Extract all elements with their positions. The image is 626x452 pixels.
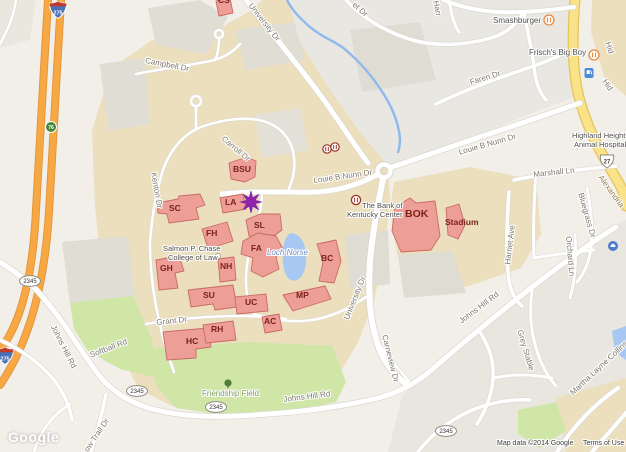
- restaurant-icon-smashburger[interactable]: [544, 15, 554, 25]
- building-label-rh: RH: [211, 325, 223, 334]
- building-label-la: LA: [225, 198, 236, 207]
- shield-text: 2345: [439, 429, 453, 435]
- shield-text: 2345: [130, 389, 144, 395]
- map-canvas[interactable]: 275 275 76 27 2345 2345 2345 234: [0, 0, 626, 452]
- building-label-sc: SC: [169, 204, 181, 213]
- place-label-chase-law-line1[interactable]: Salmon P. Chase: [163, 245, 220, 253]
- shield-text: 275: [0, 357, 9, 363]
- place-label-animal-hospital-line1[interactable]: Highland Heights: [572, 132, 626, 140]
- place-label-animal-hospital-line2[interactable]: Animal Hospital: [574, 141, 626, 149]
- building-label-cs: CS: [218, 0, 230, 5]
- shield-text: 275: [53, 11, 62, 17]
- map-artwork: 275 275 76 27 2345 2345 2345 234: [0, 0, 626, 452]
- event-marker-star[interactable]: [240, 191, 262, 213]
- ky-2345-shield-4: 2345: [436, 426, 457, 437]
- shield-text: 76: [48, 125, 54, 131]
- google-logo[interactable]: Google: [8, 430, 59, 444]
- building-label-su: SU: [203, 291, 215, 300]
- shield-text: 2345: [209, 405, 223, 411]
- place-label-friendship-field[interactable]: Friendship Field: [202, 390, 259, 398]
- place-label-frischs-big-boy[interactable]: Frisch's Big Boy: [529, 49, 586, 57]
- place-label-bank-of-kentucky-line1[interactable]: The Bank of: [362, 202, 402, 210]
- building-label-mp: MP: [296, 291, 309, 300]
- building-label-uc: UC: [245, 298, 257, 307]
- building-label-ac: AC: [264, 317, 276, 326]
- ky-2345-shield-2: 2345: [127, 386, 148, 397]
- place-label-smashburger[interactable]: Smashburger: [493, 17, 541, 25]
- place-label-bank-of-kentucky-line2[interactable]: Kentucky Center: [347, 211, 402, 219]
- lodging-icon[interactable]: [608, 241, 618, 251]
- building-label-nh: NH: [220, 262, 232, 271]
- venue-icon-bank-of-kentucky-center[interactable]: [351, 195, 360, 204]
- building-label-gh: GH: [160, 264, 173, 273]
- place-label-chase-law-line2[interactable]: College of Law: [168, 254, 218, 262]
- building-label-bsu: BSU: [233, 165, 251, 174]
- venue-icon-2[interactable]: [331, 143, 339, 151]
- building-label-bc: BC: [321, 254, 333, 263]
- ky-2345-shield-3: 2345: [206, 402, 227, 413]
- shield-text: 2345: [23, 279, 37, 285]
- map-data-attribution: Map data ©2014 Google: [497, 440, 573, 447]
- building-label-bok: BOK: [405, 209, 428, 220]
- gas-station-icon[interactable]: [585, 68, 594, 78]
- exit-76-shield: 76: [46, 122, 57, 133]
- ky-2345-shield-1: 2345: [20, 276, 41, 287]
- building-label-hc: HC: [186, 337, 198, 346]
- building-label-fh: FH: [206, 229, 217, 238]
- place-label-loch-norse: Loch Norse: [267, 249, 308, 257]
- venue-icon-1[interactable]: [323, 145, 331, 153]
- building-label-stadium: Stadium: [445, 218, 479, 227]
- shield-text: 27: [604, 160, 611, 166]
- restaurant-icon-frischs[interactable]: [589, 50, 599, 60]
- building-label-sl: SL: [254, 221, 265, 230]
- building-label-fa: FA: [251, 244, 262, 253]
- terms-of-use-link[interactable]: Terms of Use: [583, 440, 624, 447]
